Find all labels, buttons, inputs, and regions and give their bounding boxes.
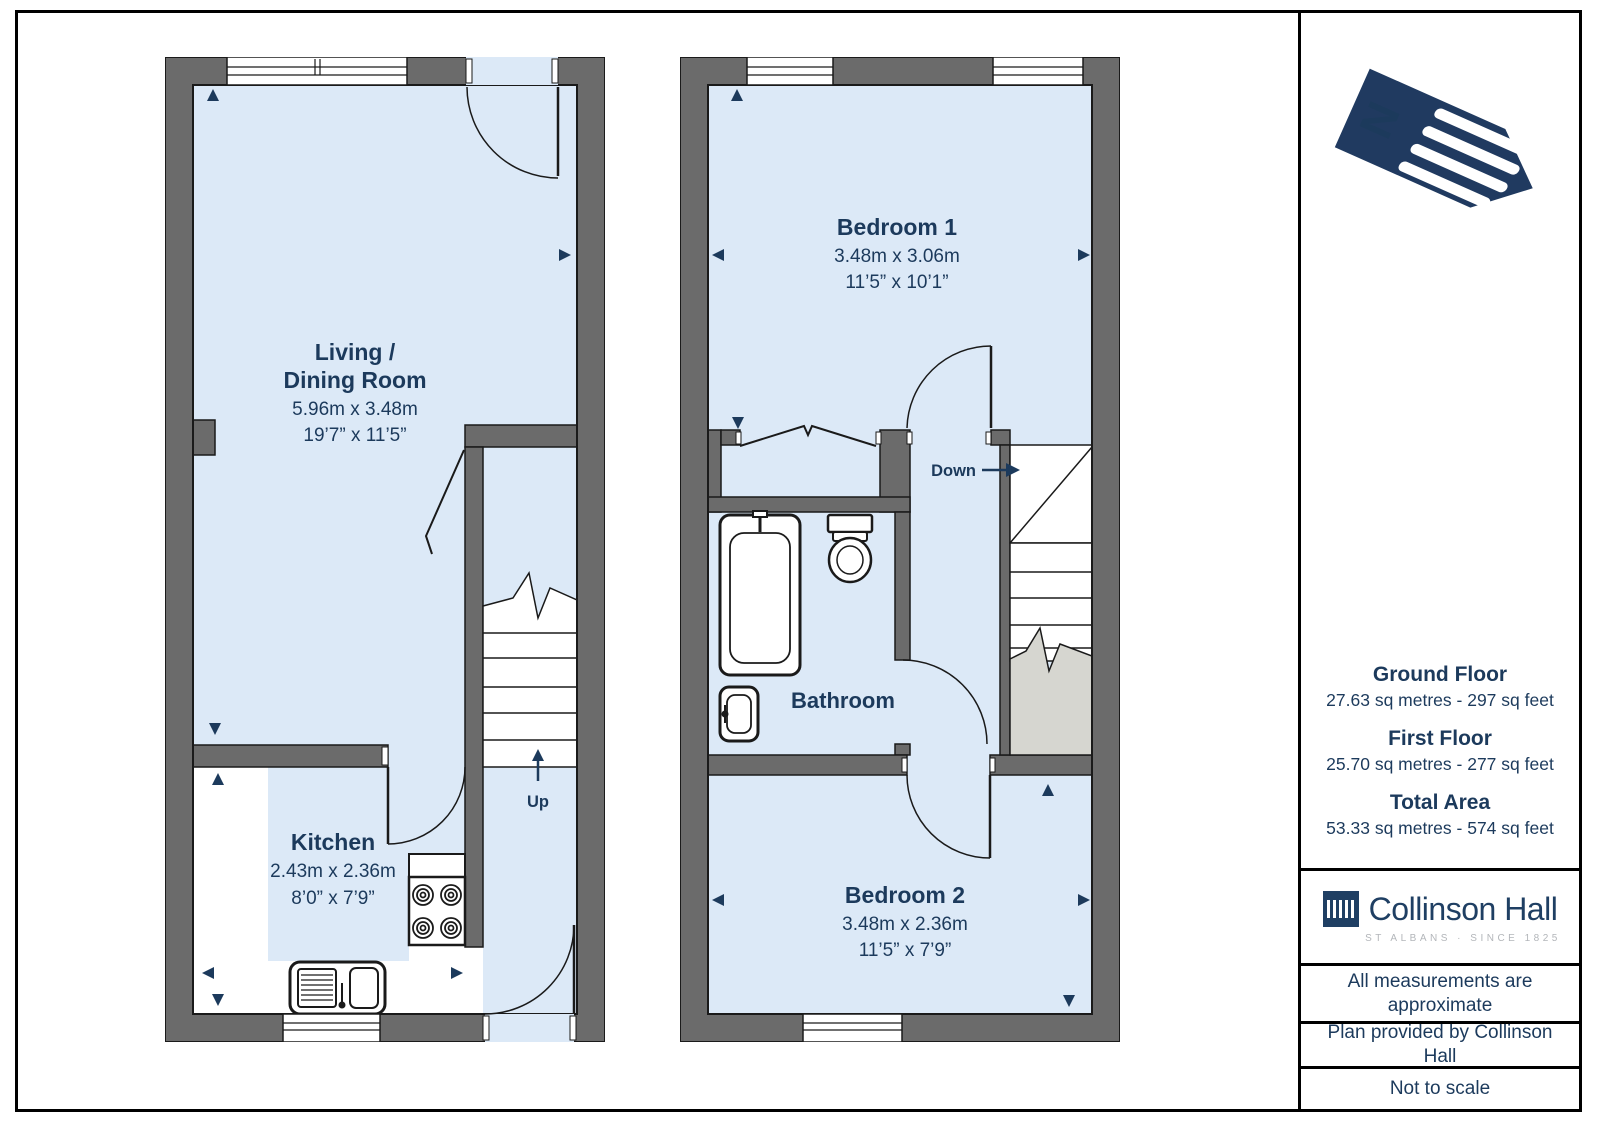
svg-text:11’5” x 10’1”: 11’5” x 10’1” bbox=[845, 272, 948, 293]
total-area: Total Area 53.33 sq metres - 574 sq feet bbox=[1301, 789, 1579, 840]
svg-text:8’0” x 7’9”: 8’0” x 7’9” bbox=[291, 888, 374, 909]
note-provider: Plan provided by Collinson Hall bbox=[1310, 1021, 1570, 1069]
svg-text:Kitchen: Kitchen bbox=[291, 829, 375, 855]
plan-frame: Up bbox=[15, 10, 1582, 1112]
collinson-hall-logo-icon bbox=[1323, 891, 1359, 927]
first-floor-area-title: First Floor bbox=[1301, 725, 1579, 752]
info-sidebar: N Ground Floor 27.63 sq metres - 297 sq … bbox=[1298, 13, 1579, 1109]
total-area-detail: 53.33 sq metres - 574 sq feet bbox=[1301, 816, 1579, 840]
brand-tagline: ST ALBANS · SINCE 1825 bbox=[1365, 933, 1561, 944]
toilet bbox=[828, 515, 872, 582]
bathtub bbox=[720, 511, 800, 675]
stove bbox=[409, 854, 465, 945]
area-summary: Ground Floor 27.63 sq metres - 297 sq fe… bbox=[1301, 661, 1579, 853]
wash-basin bbox=[720, 687, 758, 741]
bedroom1-label: Bedroom 1 3.48m x 3.06m 11’5” x 10’1” bbox=[834, 214, 960, 293]
first-floor-area-detail: 25.70 sq metres - 277 sq feet bbox=[1301, 752, 1579, 776]
bathroom-label: Bathroom bbox=[791, 688, 895, 713]
note-provider-panel: Plan provided by Collinson Hall bbox=[1301, 1021, 1579, 1066]
svg-text:3.48m x 2.36m: 3.48m x 2.36m bbox=[842, 914, 968, 935]
note-scale-panel: Not to scale bbox=[1301, 1066, 1579, 1109]
svg-text:Living /: Living / bbox=[315, 339, 396, 365]
svg-text:Bedroom 2: Bedroom 2 bbox=[845, 882, 965, 908]
first-floor-plan: Down bbox=[680, 57, 1120, 1042]
svg-text:2.43m x 2.36m: 2.43m x 2.36m bbox=[270, 861, 396, 882]
note-scale: Not to scale bbox=[1335, 1077, 1545, 1101]
ground-floor-plan: Up bbox=[165, 57, 605, 1042]
floorplan-page: Up bbox=[0, 0, 1600, 1131]
kitchen-sink bbox=[290, 962, 385, 1014]
first-floor-area: First Floor 25.70 sq metres - 277 sq fee… bbox=[1301, 725, 1579, 776]
ground-floor-area-title: Ground Floor bbox=[1301, 661, 1579, 688]
ground-floor-area: Ground Floor 27.63 sq metres - 297 sq fe… bbox=[1301, 661, 1579, 712]
down-label: Down bbox=[931, 462, 976, 480]
bedroom2-label: Bedroom 2 3.48m x 2.36m 11’5” x 7’9” bbox=[842, 882, 968, 961]
svg-text:3.48m x 3.06m: 3.48m x 3.06m bbox=[834, 246, 960, 267]
svg-text:Dining Room: Dining Room bbox=[283, 367, 426, 393]
note-measurements: All measurements are approximate bbox=[1335, 970, 1545, 1018]
ground-floor-area-detail: 27.63 sq metres - 297 sq feet bbox=[1301, 688, 1579, 712]
brand-name: Collinson Hall bbox=[1369, 891, 1558, 928]
north-compass-icon: N bbox=[1330, 55, 1550, 245]
total-area-title: Total Area bbox=[1301, 789, 1579, 816]
note-measurements-panel: All measurements are approximate bbox=[1301, 963, 1579, 1021]
svg-text:5.96m x 3.48m: 5.96m x 3.48m bbox=[292, 399, 418, 420]
svg-text:Bedroom 1: Bedroom 1 bbox=[837, 214, 957, 240]
brand-panel: Collinson Hall ST ALBANS · SINCE 1825 bbox=[1301, 868, 1579, 963]
svg-text:11’5” x 7’9”: 11’5” x 7’9” bbox=[859, 940, 952, 961]
svg-text:19’7” x 11’5”: 19’7” x 11’5” bbox=[303, 425, 406, 446]
up-label: Up bbox=[527, 793, 549, 811]
